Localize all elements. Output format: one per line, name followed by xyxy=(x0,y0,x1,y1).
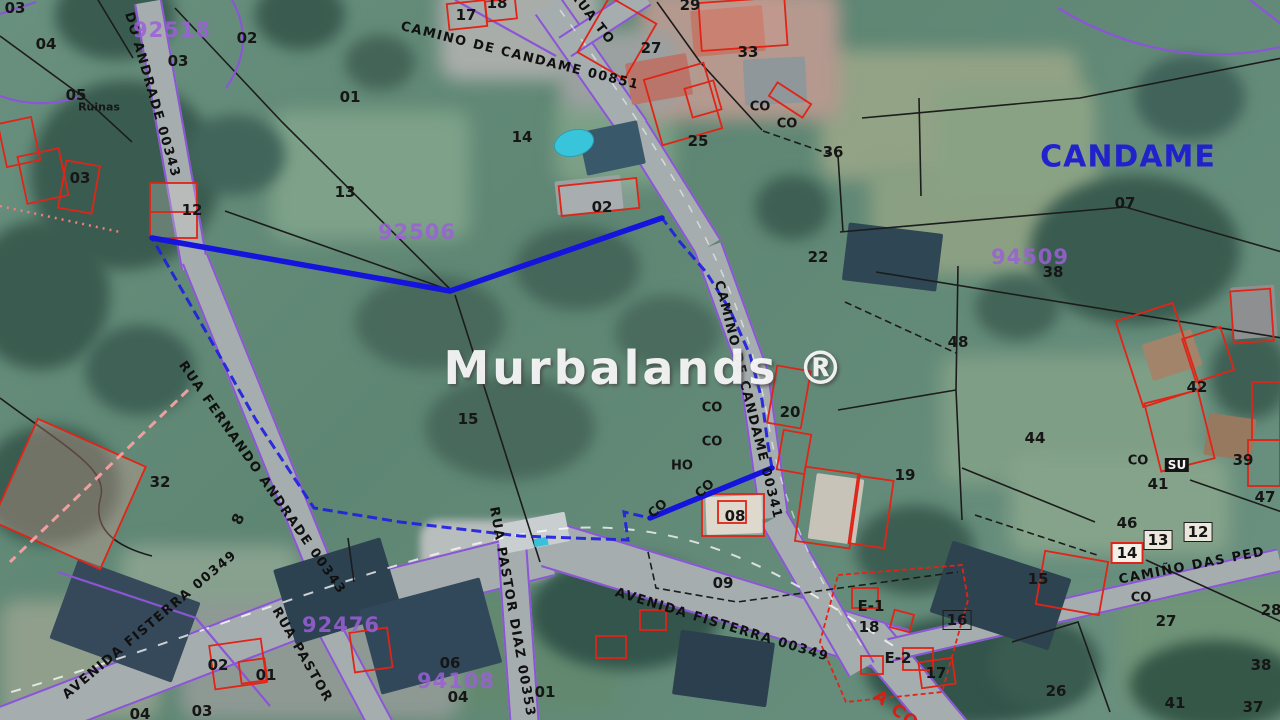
parcel-number-label: 13 xyxy=(1144,530,1173,550)
street-name-label: RUA TO xyxy=(566,0,617,48)
parcel-number-label: 17 xyxy=(456,6,477,24)
parcel-number-label: 20 xyxy=(780,403,801,421)
place-label-candame: CANDAME xyxy=(1040,140,1216,175)
parcel-number-label: 33 xyxy=(738,43,759,61)
landuse-code-label: CO xyxy=(777,117,798,132)
parcel-number-label: 04 xyxy=(130,705,151,720)
parcel-number-label: 28 xyxy=(1261,601,1280,619)
parcel-number-label: 13 xyxy=(335,183,356,201)
parcel-number-label: 41 xyxy=(1165,694,1186,712)
parcel-number-label: 18 xyxy=(859,618,880,636)
parcel-number-label: 46 xyxy=(1117,514,1138,532)
parcel-number-label: 15 xyxy=(1028,570,1049,588)
parcel-number-label: 03 xyxy=(168,52,189,70)
parcel-number-label: 12 xyxy=(182,201,203,219)
parcel-number-label: 8 xyxy=(228,510,249,527)
zone-code-label: 94108 xyxy=(417,669,495,693)
landuse-code-label: CO xyxy=(702,435,723,450)
watermark: Murbalands ® xyxy=(443,341,846,395)
parcel-number-label: 08 xyxy=(725,507,746,525)
parcel-number-label: E-1 xyxy=(858,597,885,615)
parcel-number-label: 16 xyxy=(943,610,972,630)
parcel-number-label: 09 xyxy=(713,574,734,592)
parcel-number-label: 15 xyxy=(458,410,479,428)
parcel-number-label: 14 xyxy=(512,128,533,146)
zone-code-label: 92476 xyxy=(302,613,380,637)
parcel-number-label: 39 xyxy=(1233,451,1254,469)
parcel-number-label: 29 xyxy=(680,0,701,14)
map-canvas[interactable]: 030402030105Ruinas0312131402171829273325… xyxy=(0,0,1280,720)
parcel-number-label: 12 xyxy=(1184,522,1213,542)
parcel-number-label: 01 xyxy=(535,683,556,701)
parcel-number-label: 03 xyxy=(5,0,26,17)
landuse-code-label: CO xyxy=(692,477,717,502)
parcel-number-label: 47 xyxy=(1255,488,1276,506)
parcel-number-label: 01 xyxy=(256,666,277,684)
parcel-number-label: 18 xyxy=(487,0,508,12)
parcel-number-label: 48 xyxy=(948,333,969,351)
street-name-label: RUA FERNANDO ANDRADE 00343 xyxy=(175,359,348,598)
parcel-number-label: 25 xyxy=(688,132,709,150)
parcel-number-label: 19 xyxy=(895,466,916,484)
parcel-number-label: 41 xyxy=(1148,475,1169,493)
zone-code-label: 92506 xyxy=(378,220,456,244)
landuse-code-label: SU xyxy=(1165,458,1189,472)
parcel-number-label: E-2 xyxy=(885,649,912,667)
parcel-number-label: 01 xyxy=(340,88,361,106)
landuse-code-label: CO xyxy=(750,100,771,115)
parcel-number-label: 17 xyxy=(926,664,947,682)
parcel-number-label: 04 xyxy=(36,35,57,53)
parcel-number-label: 44 xyxy=(1025,429,1046,447)
landuse-code-label: CO xyxy=(702,401,723,416)
parcel-number-label: 26 xyxy=(1046,682,1067,700)
street-name-label: A CO xyxy=(869,686,922,720)
landuse-code-label: CO xyxy=(1128,454,1149,469)
landuse-code-label: CO xyxy=(1131,591,1152,606)
parcel-number-label: 38 xyxy=(1251,656,1272,674)
parcel-number-label: 03 xyxy=(70,169,91,187)
parcel-number-label: 02 xyxy=(208,656,229,674)
parcel-number-label: Ruinas xyxy=(78,101,120,114)
parcel-number-label: 32 xyxy=(150,473,171,491)
parcel-number-label: 37 xyxy=(1243,698,1264,716)
parcel-number-label: 02 xyxy=(592,198,613,216)
parcel-number-label: 07 xyxy=(1115,194,1136,212)
street-name-label: AVENIDA FISTERRA 00349 xyxy=(60,548,240,703)
parcel-number-label: 14 xyxy=(1111,542,1144,564)
zone-code-label: 94509 xyxy=(991,245,1069,269)
landuse-code-label: HO xyxy=(671,459,693,474)
parcel-number-label: 22 xyxy=(808,248,829,266)
street-name-label: AVENIDA FISTERRA 00349 xyxy=(613,585,831,665)
parcel-number-label: 03 xyxy=(192,702,213,720)
parcel-number-label: 27 xyxy=(641,39,662,57)
parcel-number-label: 02 xyxy=(237,29,258,47)
parcel-number-label: 27 xyxy=(1156,612,1177,630)
landuse-code-label: CO xyxy=(645,497,670,522)
parcel-number-label: 42 xyxy=(1187,378,1208,396)
zone-code-label: 92518 xyxy=(133,18,211,42)
parcel-number-label: 36 xyxy=(823,143,844,161)
